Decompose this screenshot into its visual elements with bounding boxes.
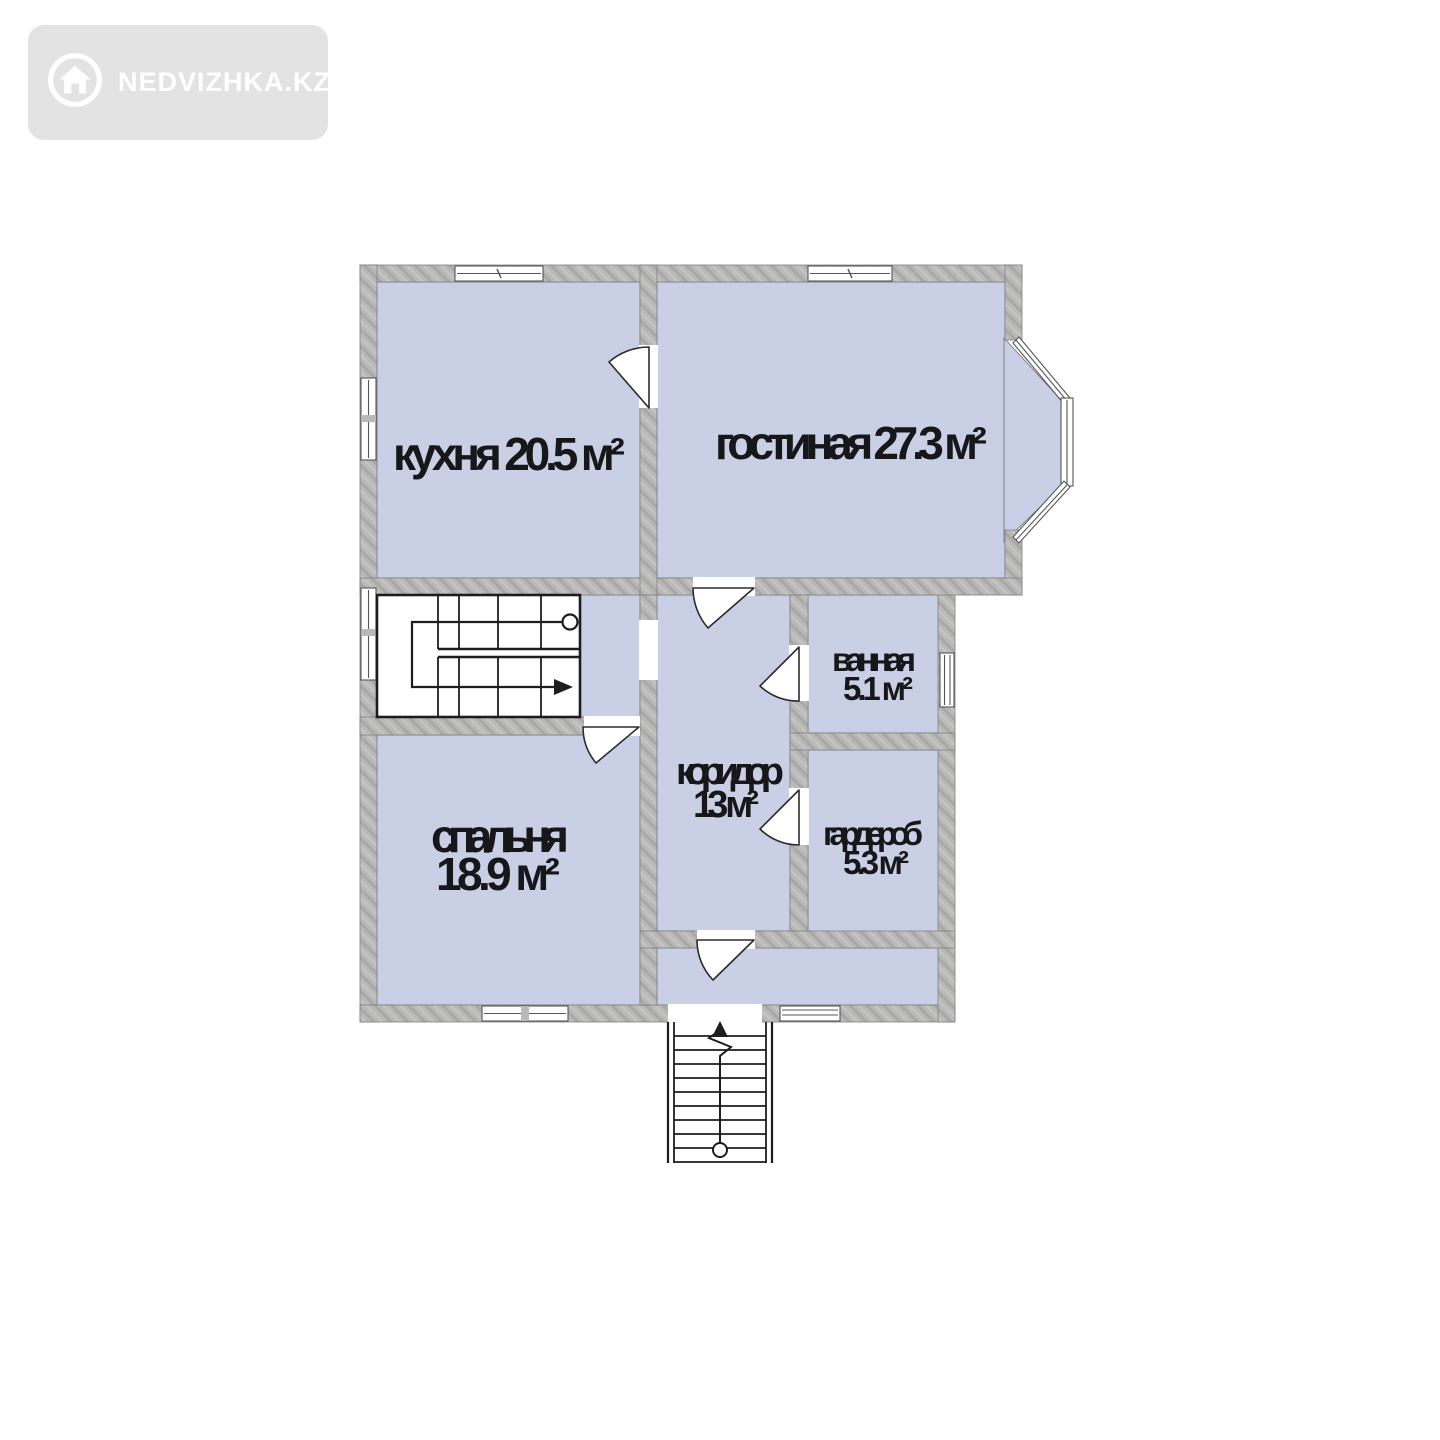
room-label-living: гостиная 27.3 м² — [715, 417, 987, 469]
entrance-direction-start — [713, 1143, 727, 1157]
wall-vestibule-top — [640, 931, 955, 948]
room-label-kitchen: кухня 20.5 м² — [393, 428, 625, 480]
page: NEDVIZHKA.KZ — [0, 0, 1440, 1440]
wall-kitchen-living-divider — [640, 265, 657, 595]
window-vestibule-bottom — [780, 1006, 840, 1021]
wall-living-right-upper — [1005, 265, 1022, 340]
wall-bath-wardrobe-divider — [790, 733, 955, 750]
room-area-wardrobe: 5.3 м² — [843, 844, 909, 881]
wall-mid-horizontal — [360, 578, 1022, 595]
window-bathroom-right — [940, 653, 954, 707]
wall-bottom — [360, 1005, 955, 1022]
window-bedroom-bottom — [482, 1006, 568, 1021]
stair-direction-start — [563, 615, 578, 630]
room-area-corridor: 13 м² — [693, 784, 759, 826]
exterior-entrance-staircase — [668, 1021, 772, 1163]
room-area-bedroom: 18.9 м² — [436, 848, 560, 900]
entrance-direction-arrow — [712, 1021, 728, 1037]
window-living-top — [808, 266, 892, 281]
stair-landing — [580, 595, 640, 717]
window-stairhall-left — [361, 588, 376, 680]
wall-right — [938, 578, 955, 1022]
window-kitchen-top — [455, 266, 543, 281]
interior-staircase — [377, 595, 580, 717]
window-kitchen-left — [361, 378, 376, 460]
room-area-bathroom: 5.1 м² — [843, 670, 913, 707]
floor-plan: кухня 20.5 м² гостиная 27.3 м² ванная 5.… — [0, 0, 1440, 1440]
